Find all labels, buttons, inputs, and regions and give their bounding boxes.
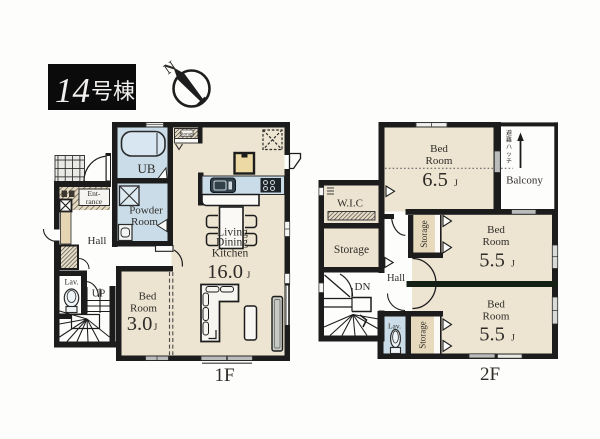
svg-text:避: 避: [506, 129, 512, 137]
svg-text:Lav.: Lav.: [65, 278, 79, 287]
svg-text:難: 難: [506, 136, 512, 144]
svg-text:J: J: [511, 260, 515, 270]
svg-text:Kitchen: Kitchen: [212, 248, 249, 260]
svg-text:Room: Room: [131, 216, 158, 228]
svg-text:Storage: Storage: [419, 220, 429, 248]
svg-text:Hall: Hall: [88, 235, 107, 247]
svg-text:2F: 2F: [480, 364, 500, 385]
svg-text:チ: チ: [506, 158, 512, 165]
svg-text:Balcony: Balcony: [506, 175, 543, 187]
svg-text:Storage: Storage: [179, 133, 195, 138]
svg-text:W.I.C: W.I.C: [337, 198, 363, 210]
svg-text:Bed: Bed: [487, 224, 505, 236]
svg-text:DN: DN: [355, 281, 371, 293]
svg-text:Bed: Bed: [139, 291, 157, 303]
svg-text:Lav.: Lav.: [388, 322, 401, 331]
svg-text:16.0: 16.0: [207, 261, 243, 283]
svg-text:J: J: [154, 323, 158, 333]
svg-text:UB: UB: [137, 161, 155, 176]
svg-text:Bed: Bed: [430, 143, 448, 155]
svg-text:5.5: 5.5: [479, 250, 505, 272]
svg-text:6.5: 6.5: [422, 169, 448, 191]
svg-text:5.5: 5.5: [479, 324, 505, 346]
svg-text:Hall: Hall: [387, 273, 405, 284]
svg-text:号棟: 号棟: [91, 79, 135, 104]
svg-text:Room: Room: [483, 311, 510, 323]
svg-text:Room: Room: [483, 236, 510, 248]
svg-text:Room: Room: [426, 155, 453, 167]
svg-text:Powder: Powder: [129, 205, 163, 217]
svg-text:Storage: Storage: [334, 244, 369, 256]
svg-text:J: J: [511, 334, 515, 344]
svg-text:ッ: ッ: [506, 152, 512, 158]
svg-text:ハ: ハ: [506, 145, 512, 151]
svg-text:Storage: Storage: [418, 321, 428, 349]
svg-text:UP: UP: [92, 289, 106, 300]
svg-text:Bed: Bed: [487, 299, 505, 311]
svg-text:rance: rance: [86, 197, 103, 206]
svg-text:1F: 1F: [214, 365, 234, 386]
svg-text:3.0: 3.0: [127, 313, 153, 335]
svg-text:14: 14: [55, 71, 90, 110]
svg-text:J: J: [454, 179, 458, 189]
svg-text:J: J: [247, 271, 251, 281]
